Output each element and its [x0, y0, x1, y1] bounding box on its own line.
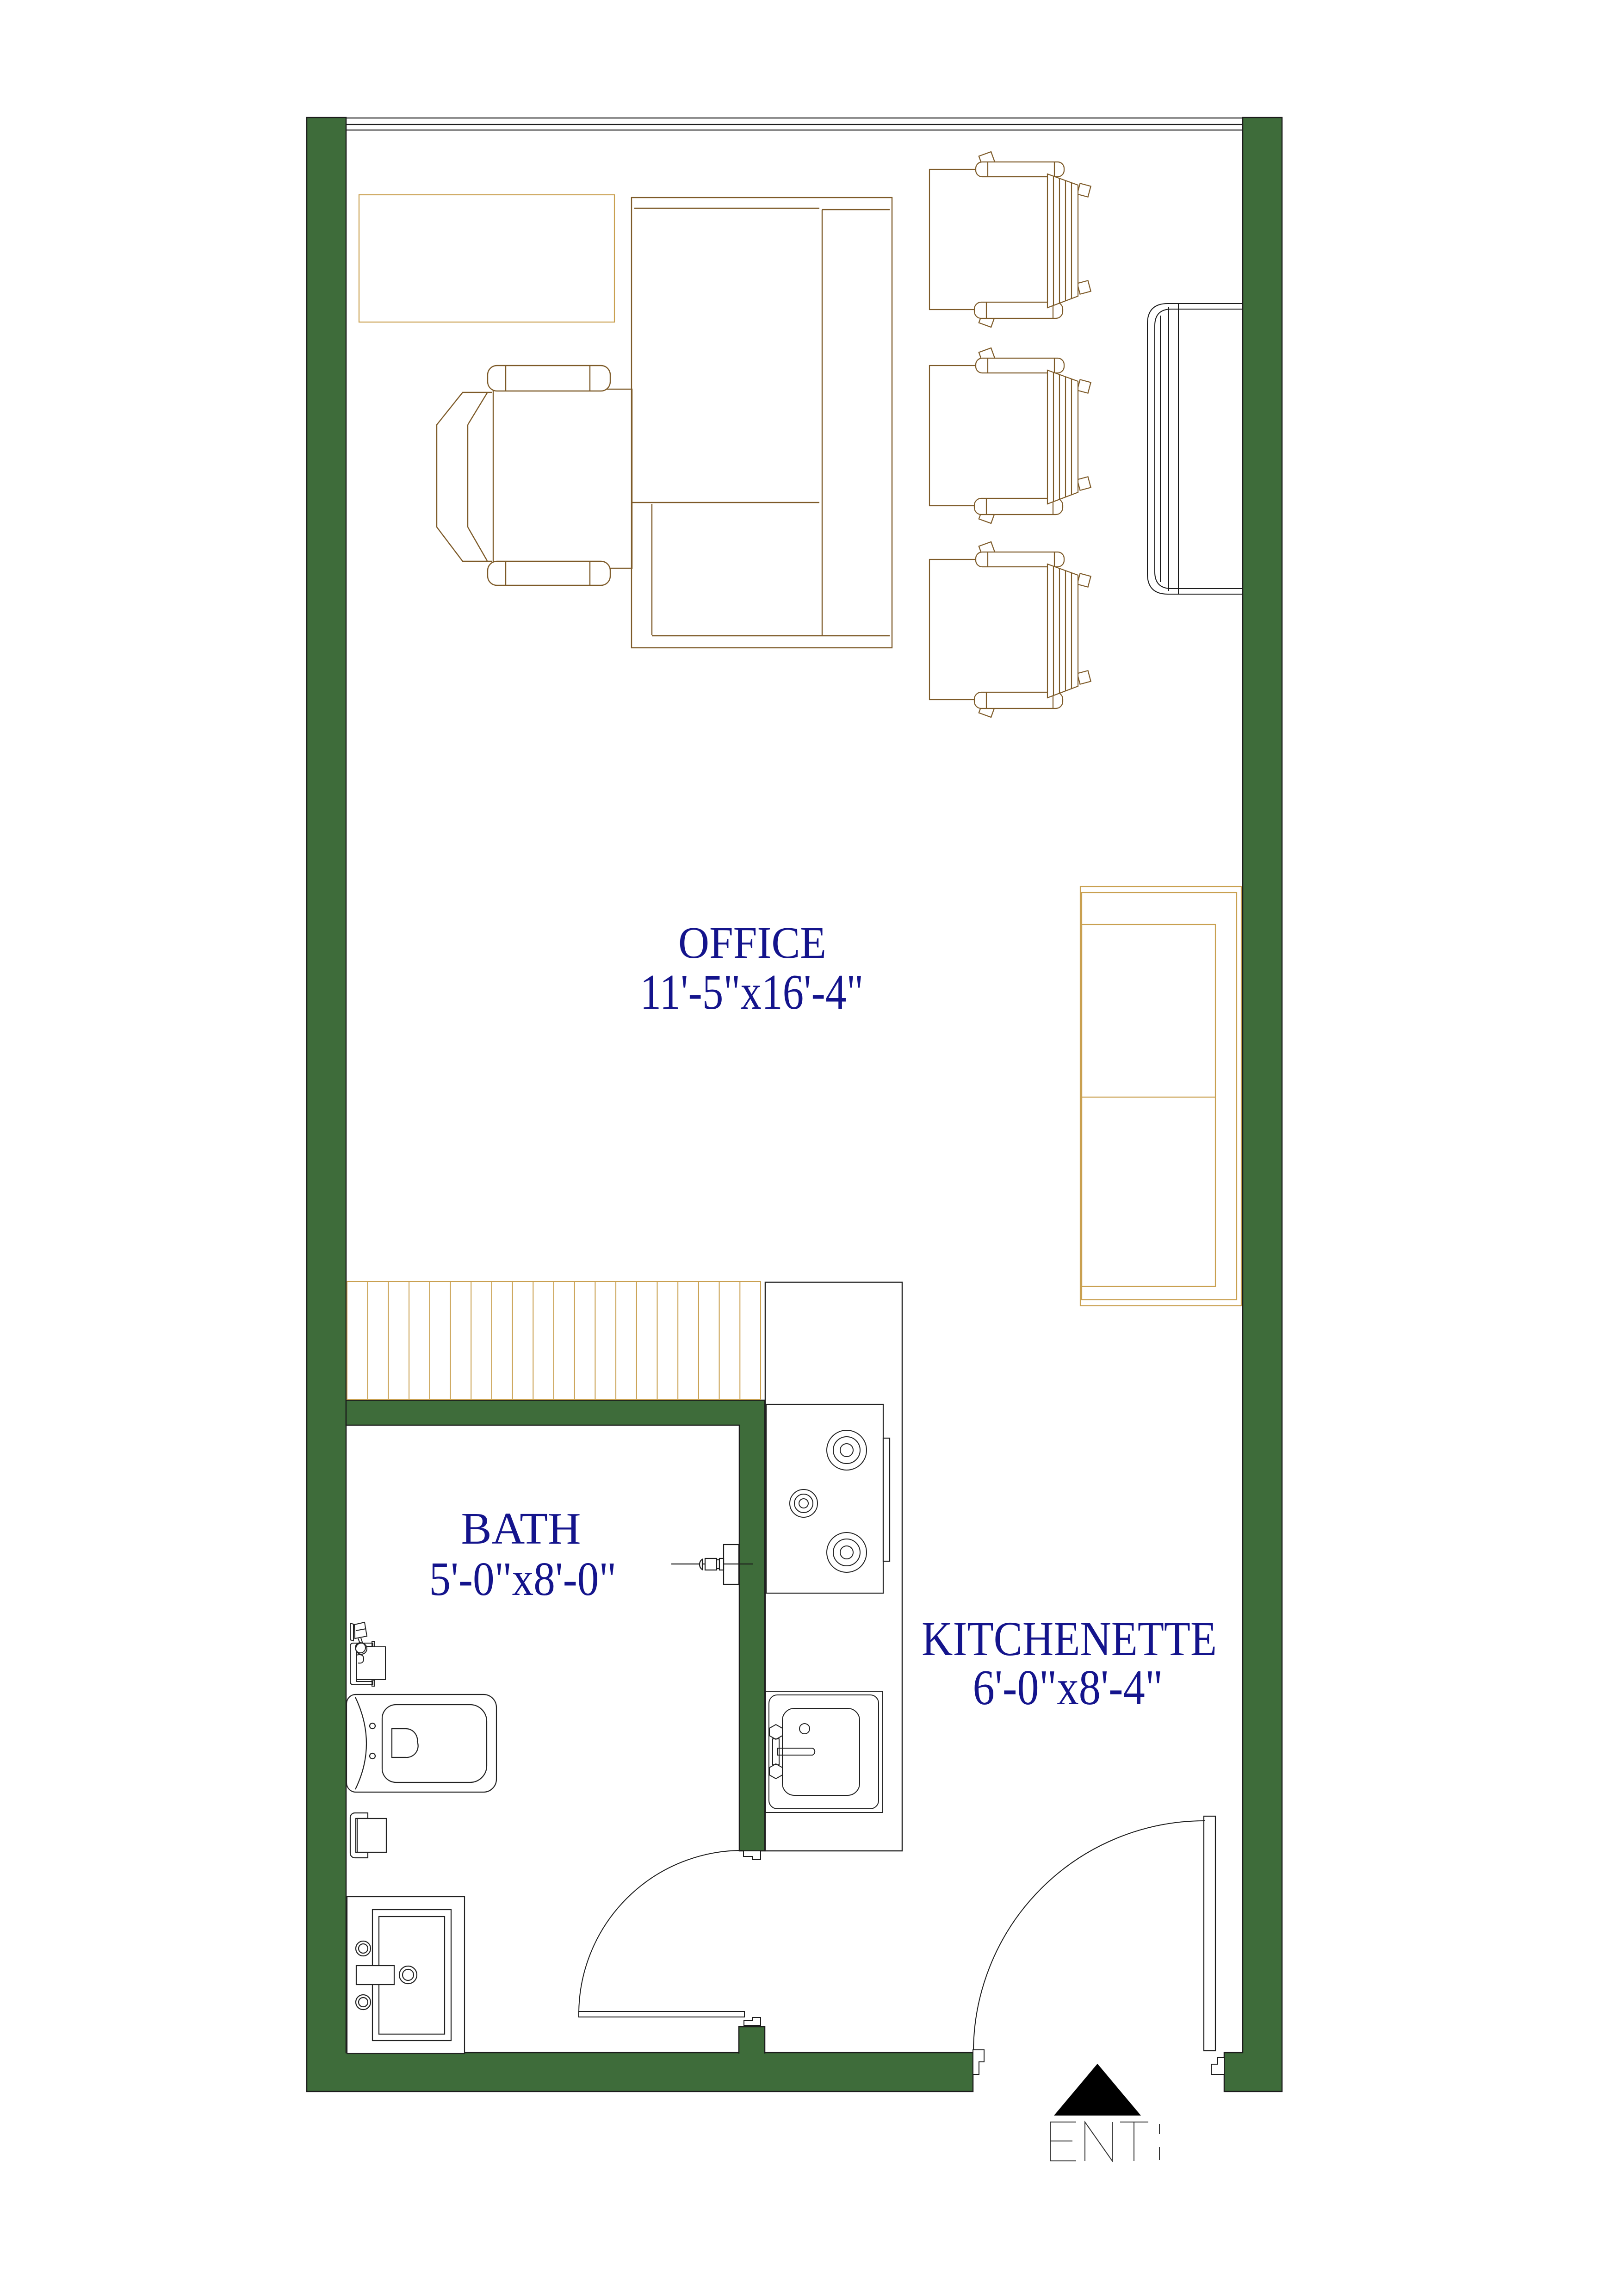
svg-text:OFFICE: OFFICE [678, 918, 826, 968]
svg-text:BATH: BATH [461, 1504, 581, 1554]
svg-text:11'-5"x16'-4": 11'-5"x16'-4" [640, 965, 864, 1020]
svg-text:5'-0"x8'-0": 5'-0"x8'-0" [429, 1552, 617, 1606]
svg-text:6'-0"x8'-4": 6'-0"x8'-4" [973, 1660, 1163, 1715]
svg-text:KITCHENETTE: KITCHENETTE [922, 1612, 1217, 1666]
